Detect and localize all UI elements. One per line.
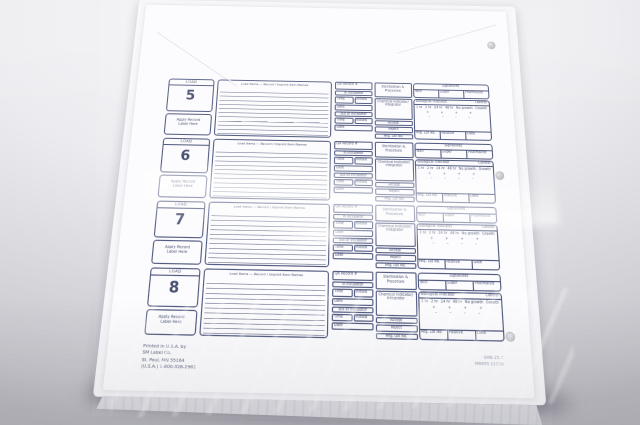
sig-cell-pharmacist: Pharmacist bbox=[470, 214, 496, 222]
date-cell: Date bbox=[472, 261, 499, 270]
sig-cell-pharmacist: Pharmacist bbox=[474, 282, 501, 291]
load-section-7: LOAD 7 Apply Record Label Here Load Item… bbox=[151, 201, 500, 271]
ruled-lines bbox=[213, 148, 328, 198]
record-grid: QA Record # in incubator Time Initials D… bbox=[333, 141, 496, 204]
sig-cell-tech: Tech bbox=[414, 90, 439, 97]
sterilization-cell: Sterilization & Procedure bbox=[374, 82, 412, 97]
initials-cell: Initials bbox=[354, 117, 373, 124]
minus-row: – – – – bbox=[417, 240, 497, 247]
initials-cell: Initials bbox=[354, 179, 373, 186]
initials-cell: Initials bbox=[353, 289, 373, 297]
accept-cell: Accept bbox=[375, 316, 417, 324]
lined-area-header: Load Items — Record / Imprint Item Names bbox=[214, 140, 330, 148]
sig-cell-super: Super bbox=[441, 150, 467, 158]
date-cell: Date bbox=[476, 331, 504, 340]
load-items-lined-area: Load Items — Record / Imprint Item Names bbox=[204, 202, 330, 268]
reject-cell: Reject bbox=[375, 324, 417, 332]
biological-header: Biological indicator bbox=[416, 100, 447, 104]
out-incubator-label: out of incubator bbox=[332, 306, 374, 313]
date-cell: Date bbox=[333, 252, 374, 260]
biological-indicator-block: Biological indicator Control 1 hr 2 hr 2… bbox=[413, 99, 492, 141]
date-cell: Date bbox=[334, 186, 373, 193]
date-cell: Date bbox=[469, 195, 495, 203]
control-label: Control bbox=[475, 101, 487, 105]
reject-cell: Reject bbox=[375, 254, 416, 261]
biological-header: Biological indicator bbox=[421, 293, 455, 298]
accept-cell: Accept bbox=[375, 181, 414, 188]
out-incubator-label: out of incubator bbox=[333, 237, 373, 243]
positive-cell: Positive bbox=[445, 260, 473, 269]
mfg-lot-cell: Mfg. Lot No. bbox=[420, 330, 449, 339]
printed-form: LOAD 5 Apply Record Label Here Load Item… bbox=[144, 78, 505, 345]
date-cell: Date bbox=[333, 229, 373, 237]
ruled-lines bbox=[203, 279, 326, 335]
ruled-lines bbox=[208, 212, 327, 265]
biological-indicator-block: Biological indicator Control 1 hr 2 hr 2… bbox=[414, 159, 496, 204]
minus-row: – – – – bbox=[416, 175, 494, 181]
load-number-box: LOAD 5 bbox=[166, 78, 215, 112]
time-cell: Time bbox=[334, 157, 353, 164]
load-items-lined-area: Load Items — Record / Imprint Item Names bbox=[209, 139, 331, 201]
apply-record-label-box: Apply Record Label Here bbox=[151, 240, 203, 265]
signatures-block: Signatures Tech Super Pharmacist bbox=[415, 206, 497, 224]
load-number: 6 bbox=[161, 145, 208, 169]
time-cell: Time bbox=[332, 313, 352, 321]
time-cell: Time bbox=[334, 178, 353, 185]
qa-record-cell: QA Record # bbox=[334, 141, 373, 150]
biological-indicator-block: Biological indicator Control 1 hr 2 hr 2… bbox=[416, 223, 500, 270]
chemical-indicator-block: Chemical indicator/ integrator Accept Re… bbox=[374, 158, 414, 202]
load-number: 8 bbox=[149, 276, 199, 303]
apply-record-label-box: Apply Record Label Here bbox=[144, 309, 197, 336]
printer-imprint: Printed in U.S.A. by SM Label Co. St. Pa… bbox=[141, 342, 198, 370]
chemical-header: Chemical indicator/ integrator bbox=[375, 291, 417, 316]
in-incubator-label: in incubator bbox=[333, 214, 373, 220]
load-number: 5 bbox=[167, 85, 213, 108]
load-number: 7 bbox=[155, 208, 204, 234]
load-number-box: LOAD 8 bbox=[147, 267, 201, 307]
initials-cell: Initials bbox=[354, 97, 372, 104]
punch-hole bbox=[505, 332, 515, 342]
date-cell: Date bbox=[332, 297, 374, 305]
load-items-lined-area: Load Items — Record / Imprint Item Names bbox=[199, 268, 329, 338]
punch-hole bbox=[487, 42, 496, 50]
time-cell: Time bbox=[333, 244, 353, 252]
initials-cell: Initials bbox=[353, 314, 373, 322]
chemical-indicator-block: Chemical indicator/ integrator Accept Re… bbox=[375, 291, 417, 340]
mfg-lot-cell: Mfg. Lot No. bbox=[375, 332, 417, 340]
punch-hole bbox=[495, 171, 504, 180]
qa-record-cell: QA Record # bbox=[333, 204, 373, 214]
positive-cell: Positive bbox=[440, 132, 466, 140]
chemical-indicator-block: Chemical indicator/ integrator Accept Re… bbox=[375, 222, 416, 268]
initials-cell: Initials bbox=[354, 221, 373, 229]
sterilization-cell: Sterilization & Procedure bbox=[375, 272, 416, 290]
date-cell: Date bbox=[334, 165, 373, 172]
qa-record-cell: QA Record # bbox=[335, 82, 373, 91]
load-section-8: LOAD 8 Apply Record Label Here Load Item… bbox=[144, 267, 505, 341]
control-label: Control bbox=[478, 162, 490, 166]
chemical-header: Chemical indicator/ integrator bbox=[374, 98, 412, 119]
mfg-lot-cell: Mfg. Lot No. bbox=[416, 193, 443, 201]
accept-cell: Accept bbox=[375, 247, 416, 254]
control-label: Control bbox=[482, 226, 495, 230]
sig-cell-pharmacist: Pharmacist bbox=[467, 151, 492, 159]
date-cell: Date bbox=[332, 322, 374, 330]
apply-record-label-box: Apply Record Label Here bbox=[164, 113, 213, 135]
sig-cell-super: Super bbox=[439, 91, 465, 98]
sig-cell-pharmacist: Pharmacist bbox=[464, 91, 489, 98]
biological-indicator-block: Biological indicator Control 1 hr 2 hr 2… bbox=[418, 291, 505, 341]
accept-cell: Accept bbox=[374, 120, 412, 126]
out-incubator-label: out of incubator bbox=[335, 111, 373, 117]
sig-cell-super: Super bbox=[443, 214, 470, 222]
chemical-header: Chemical indicator/ integrator bbox=[374, 158, 413, 181]
biological-header: Biological indicator bbox=[419, 225, 452, 230]
in-incubator-label: in incubator bbox=[335, 91, 373, 97]
lined-area-header: Load Items — Record / Imprint Item Names bbox=[205, 270, 328, 279]
sterilization-cell: Sterilization & Procedure bbox=[375, 205, 415, 222]
mfg-lot-cell: Mfg. Lot No. bbox=[374, 133, 412, 139]
control-label: Control bbox=[486, 294, 499, 298]
sterilization-cell: Sterilization & Procedure bbox=[374, 142, 413, 158]
form-number: SMB 25-7 MR695 1125A bbox=[474, 355, 504, 369]
sig-cell-tech: Tech bbox=[418, 281, 446, 290]
load-number-box: LOAD 6 bbox=[160, 138, 210, 174]
mfg-lot-cell: Mfg. Lot No. bbox=[375, 195, 415, 202]
ruled-lines bbox=[217, 88, 329, 135]
lined-area-header: Load Items — Record / Imprint Item Names bbox=[218, 80, 331, 88]
apply-record-label-box: Apply Record Label Here bbox=[158, 175, 208, 199]
reject-cell: Reject bbox=[375, 188, 414, 195]
minus-row: – – – – bbox=[419, 309, 502, 316]
load-items-lined-area: Load Items — Record / Imprint Item Names bbox=[214, 79, 332, 137]
date-cell: Date bbox=[466, 132, 491, 140]
minus-row: – – – – bbox=[414, 114, 490, 120]
biological-header: Biological indicator bbox=[418, 161, 450, 165]
time-cell: Time bbox=[334, 117, 353, 124]
record-grid: QA Record # in incubator Time Initials D… bbox=[334, 82, 492, 141]
signatures-block: Signatures Tech Super Pharmacist bbox=[417, 272, 502, 291]
load-section-5: LOAD 5 Apply Record Label Here Load Item… bbox=[164, 78, 493, 140]
signatures-block: Signatures Tech Super Pharmacist bbox=[414, 143, 494, 160]
time-cell: Time bbox=[332, 289, 352, 297]
date-cell: Date bbox=[334, 125, 372, 132]
mfg-lot-cell: Mfg. Lot No. bbox=[415, 131, 441, 139]
load-section-6: LOAD 6 Apply Record Label Here Load Item… bbox=[158, 138, 497, 204]
positive-cell: Positive bbox=[443, 194, 470, 202]
date-cell: Date bbox=[335, 104, 373, 111]
in-incubator-label: in incubator bbox=[332, 281, 373, 288]
lined-area-header: Load Items — Record / Imprint Item Names bbox=[209, 203, 328, 212]
out-incubator-label: out of incubator bbox=[334, 172, 373, 178]
reject-cell: Reject bbox=[374, 126, 412, 132]
paper-stack: LOAD 5 Apply Record Label Here Load Item… bbox=[0, 0, 640, 425]
positive-cell: Positive bbox=[448, 331, 477, 340]
top-form-sheet: LOAD 5 Apply Record Label Here Load Item… bbox=[103, 5, 535, 399]
qa-record-cell: QA Record # bbox=[332, 271, 373, 281]
initials-cell: Initials bbox=[354, 157, 373, 164]
chemical-indicator-block: Chemical indicator/ integrator Accept Re… bbox=[374, 98, 413, 139]
record-grid: QA Record # in incubator Time Initials D… bbox=[331, 271, 504, 342]
load-number-box: LOAD 7 bbox=[154, 201, 206, 239]
sig-cell-tech: Tech bbox=[415, 150, 441, 158]
time-cell: Time bbox=[335, 96, 353, 103]
mfg-lot-cell: Mfg. Lot No. bbox=[375, 262, 416, 269]
product-photo-scene: LOAD 5 Apply Record Label Here Load Item… bbox=[0, 0, 640, 425]
mfg-lot-cell: Mfg. Lot No. bbox=[418, 260, 446, 269]
initials-cell: Initials bbox=[354, 244, 374, 252]
chemical-header: Chemical indicator/ integrator bbox=[375, 222, 416, 246]
in-incubator-label: in incubator bbox=[334, 150, 373, 156]
record-grid: QA Record # in incubator Time Initials D… bbox=[332, 204, 500, 271]
time-cell: Time bbox=[333, 221, 353, 229]
signatures-block: Signatures Tech Super Pharmacist bbox=[412, 83, 489, 99]
sig-cell-tech: Tech bbox=[417, 213, 444, 221]
sig-cell-super: Super bbox=[446, 281, 474, 290]
